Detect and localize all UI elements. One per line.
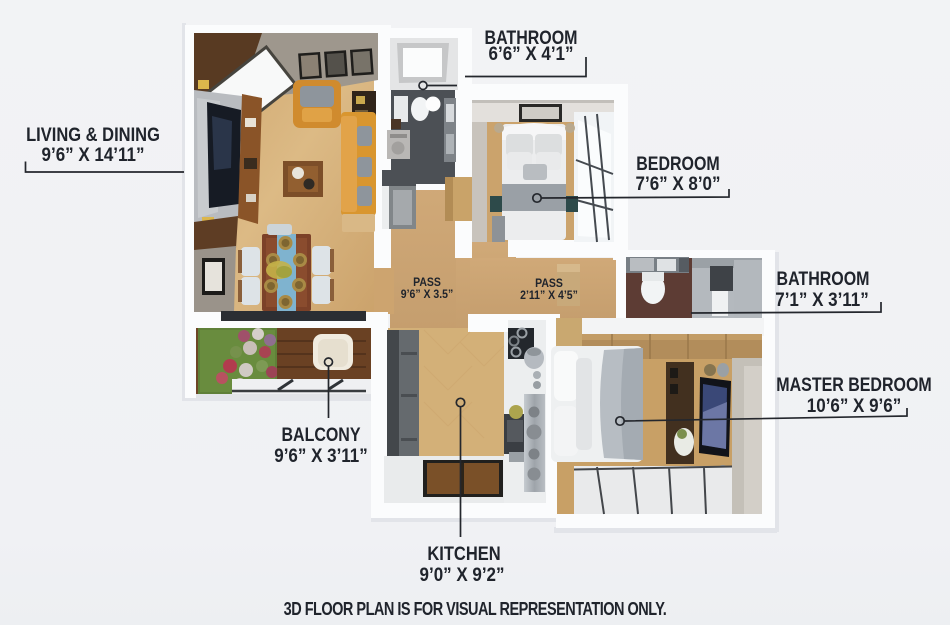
- svg-text:BALCONY: BALCONY: [281, 424, 360, 446]
- svg-text:7’1” X 3’11”: 7’1” X 3’11”: [775, 288, 868, 310]
- svg-text:9’0” X 9’2”: 9’0” X 9’2”: [420, 563, 505, 585]
- svg-text:MASTER BEDROOM: MASTER BEDROOM: [776, 374, 931, 396]
- svg-text:BATHROOM: BATHROOM: [777, 268, 870, 290]
- svg-text:9’6” X 14’11”: 9’6” X 14’11”: [42, 143, 145, 165]
- svg-text:PASS: PASS: [413, 277, 441, 290]
- svg-text:10’6” X 9’6”: 10’6” X 9’6”: [807, 394, 901, 416]
- svg-text:7’6” X 8’0”: 7’6” X 8’0”: [636, 172, 721, 194]
- svg-text:6’6” X 4’1”: 6’6” X 4’1”: [489, 42, 574, 64]
- svg-text:3D FLOOR PLAN IS FOR VISUAL RE: 3D FLOOR PLAN IS FOR VISUAL REPRESENTATI…: [284, 598, 667, 619]
- svg-text:KITCHEN: KITCHEN: [427, 543, 500, 565]
- svg-text:2’11” X 4’5”: 2’11” X 4’5”: [520, 290, 578, 303]
- svg-text:PASS: PASS: [535, 278, 563, 291]
- svg-text:9’6” X 3’11”: 9’6” X 3’11”: [274, 444, 367, 466]
- svg-text:9’6” X 3.5”: 9’6” X 3.5”: [401, 289, 453, 302]
